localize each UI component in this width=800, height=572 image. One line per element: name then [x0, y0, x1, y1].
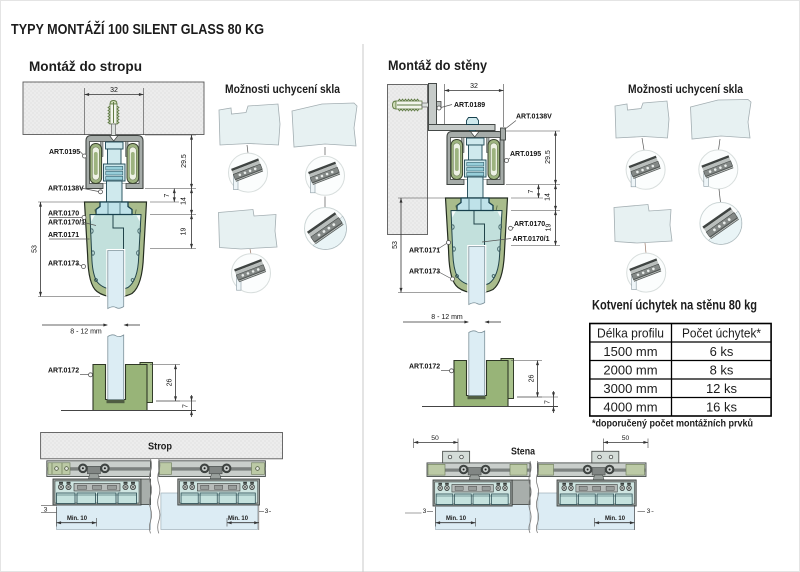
svg-text:TYPY MONTÁŽÍ 100 SILENT GLASS: TYPY MONTÁŽÍ 100 SILENT GLASS 80 KG	[11, 20, 264, 38]
svg-text:29.5: 29.5	[181, 154, 188, 168]
svg-text:Montáž do stropu: Montáž do stropu	[29, 58, 142, 74]
svg-text:Strop: Strop	[148, 442, 172, 453]
svg-text:ART.0189: ART.0189	[454, 102, 485, 109]
svg-text:ART.0195: ART.0195	[49, 149, 80, 156]
svg-text:50: 50	[431, 435, 439, 442]
svg-text:50: 50	[622, 435, 630, 442]
svg-text:Možnosti uchycení skla: Možnosti uchycení skla	[225, 82, 340, 96]
svg-text:32: 32	[110, 87, 118, 94]
svg-text:ART.0172: ART.0172	[409, 364, 440, 371]
svg-text:Min. 10: Min. 10	[605, 515, 625, 522]
svg-text:Délka profilu: Délka profilu	[597, 326, 664, 341]
svg-text:26: 26	[529, 375, 536, 383]
svg-text:ART.0173: ART.0173	[48, 261, 79, 268]
svg-text:7: 7	[545, 400, 552, 404]
svg-text:6 ks: 6 ks	[710, 344, 734, 359]
svg-text:Montáž do stěny: Montáž do stěny	[388, 57, 487, 73]
svg-text:ART.0171: ART.0171	[409, 248, 440, 255]
svg-text:7: 7	[183, 404, 190, 408]
svg-text:3: 3	[44, 507, 48, 514]
svg-text:53: 53	[32, 245, 39, 253]
svg-text:ART.0172: ART.0172	[48, 368, 79, 375]
svg-text:4000 mm: 4000 mm	[603, 400, 657, 415]
svg-text:19: 19	[181, 228, 188, 236]
svg-text:3: 3	[265, 508, 269, 515]
svg-text:7: 7	[528, 189, 535, 193]
svg-text:14: 14	[545, 193, 552, 201]
svg-text:ART.0170/1: ART.0170/1	[48, 220, 85, 227]
svg-text:53: 53	[392, 241, 399, 249]
svg-text:8 - 12 mm: 8 - 12 mm	[70, 329, 102, 336]
svg-text:16 ks: 16 ks	[706, 400, 738, 415]
svg-text:26: 26	[167, 379, 174, 387]
svg-text:7: 7	[164, 193, 171, 197]
svg-text:Kotvení úchytek na stěnu 80 kg: Kotvení úchytek na stěnu 80 kg	[592, 298, 757, 313]
svg-text:ART.0170/1: ART.0170/1	[513, 236, 550, 243]
svg-text:Min. 10: Min. 10	[67, 515, 87, 522]
svg-text:12 ks: 12 ks	[706, 381, 738, 396]
svg-text:Min. 10: Min. 10	[228, 515, 248, 522]
svg-text:Stena: Stena	[511, 447, 535, 458]
svg-text:8 - 12 mm: 8 - 12 mm	[431, 314, 463, 321]
svg-text:Počet úchytek*: Počet úchytek*	[682, 326, 761, 341]
svg-text:8 ks: 8 ks	[710, 363, 734, 378]
svg-text:ART.0173: ART.0173	[409, 269, 440, 276]
svg-text:3: 3	[647, 508, 651, 515]
svg-text:1500 mm: 1500 mm	[603, 344, 657, 359]
svg-text:ART.0170: ART.0170	[514, 221, 545, 228]
svg-text:19: 19	[546, 224, 553, 232]
svg-text:3000 mm: 3000 mm	[603, 381, 657, 396]
svg-text:ART.0170: ART.0170	[48, 211, 79, 218]
svg-text:ART.0171: ART.0171	[48, 232, 79, 239]
svg-text:ART.0138V: ART.0138V	[516, 114, 552, 121]
svg-text:*doporučený počet montážních p: *doporučený počet montážních prvků	[592, 418, 753, 430]
svg-text:Min. 10: Min. 10	[446, 515, 466, 522]
svg-text:3: 3	[423, 508, 427, 515]
svg-text:32: 32	[470, 83, 478, 90]
svg-text:2000 mm: 2000 mm	[603, 363, 657, 378]
svg-text:14: 14	[181, 197, 188, 205]
svg-text:Možnosti uchycení skla: Možnosti uchycení skla	[628, 82, 743, 96]
svg-text:ART.0195: ART.0195	[510, 151, 541, 158]
svg-text:29.5: 29.5	[545, 150, 552, 164]
svg-text:ART.0138V: ART.0138V	[48, 186, 84, 193]
